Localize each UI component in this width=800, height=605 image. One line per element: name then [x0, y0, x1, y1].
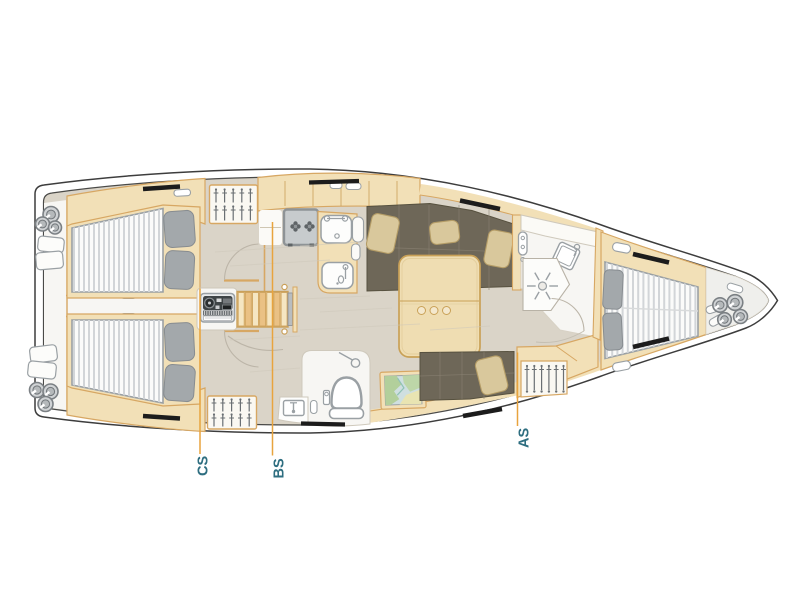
svg-text:CS: CS — [196, 456, 212, 476]
svg-text:BS: BS — [272, 458, 288, 478]
svg-text:AS: AS — [517, 428, 533, 448]
